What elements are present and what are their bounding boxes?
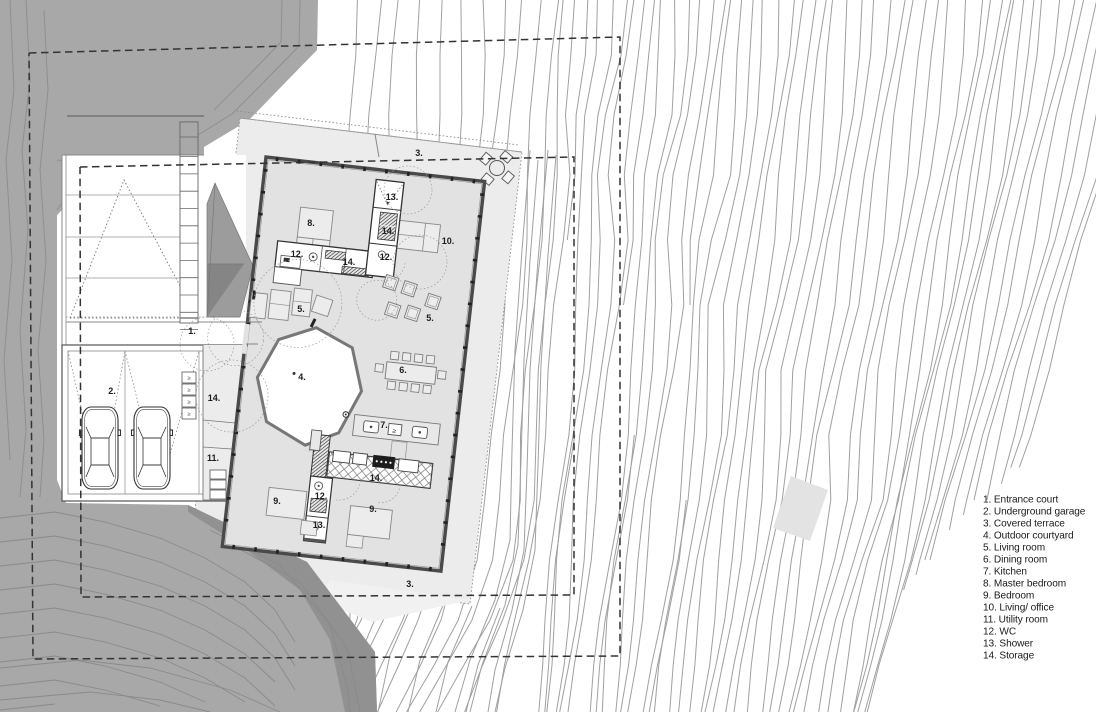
svg-text:12.: 12. <box>380 252 393 262</box>
svg-text:8.: 8. <box>307 218 315 228</box>
svg-text:7. Kitchen: 7. Kitchen <box>983 567 1027 578</box>
svg-text:14.: 14. <box>370 473 383 483</box>
svg-text:2.: 2. <box>108 386 116 396</box>
svg-text:7.: 7. <box>380 420 388 430</box>
svg-text:6. Dining room: 6. Dining room <box>983 555 1047 566</box>
svg-text:4. Outdoor courtyard: 4. Outdoor courtyard <box>983 531 1074 542</box>
svg-text:11. Utility room: 11. Utility room <box>983 615 1048 626</box>
svg-text:14. Storage: 14. Storage <box>983 651 1035 662</box>
svg-text:12.: 12. <box>315 491 328 501</box>
svg-text:5.: 5. <box>426 313 434 323</box>
svg-text:12.: 12. <box>291 249 304 259</box>
svg-text:1.: 1. <box>188 326 196 336</box>
svg-text:11.: 11. <box>207 453 219 463</box>
svg-text:3.: 3. <box>406 579 414 589</box>
svg-text:4.: 4. <box>298 372 306 382</box>
svg-text:12. WC: 12. WC <box>983 627 1016 638</box>
svg-text:3.: 3. <box>415 148 423 158</box>
svg-text:9.: 9. <box>273 496 281 506</box>
svg-text:2. Underground garage: 2. Underground garage <box>983 507 1086 518</box>
svg-text:5.: 5. <box>297 304 305 314</box>
svg-text:6.: 6. <box>399 365 407 375</box>
svg-text:13. Shower: 13. Shower <box>983 639 1034 650</box>
svg-text:13.: 13. <box>386 192 399 202</box>
svg-text:8. Master bedroom: 8. Master bedroom <box>983 579 1066 590</box>
svg-text:1. Entrance court: 1. Entrance court <box>983 495 1058 506</box>
svg-text:9. Bedroom: 9. Bedroom <box>983 591 1034 602</box>
svg-text:3. Covered terrace: 3. Covered terrace <box>983 519 1065 530</box>
svg-text:14.: 14. <box>208 393 221 403</box>
svg-text:14.: 14. <box>382 226 395 236</box>
svg-text:10.: 10. <box>442 236 455 246</box>
svg-text:10. Living/ office: 10. Living/ office <box>983 603 1054 614</box>
svg-text:5. Living room: 5. Living room <box>983 543 1045 554</box>
svg-text:14.: 14. <box>343 257 356 267</box>
svg-text:9.: 9. <box>369 504 377 514</box>
svg-text:13.: 13. <box>313 520 326 530</box>
